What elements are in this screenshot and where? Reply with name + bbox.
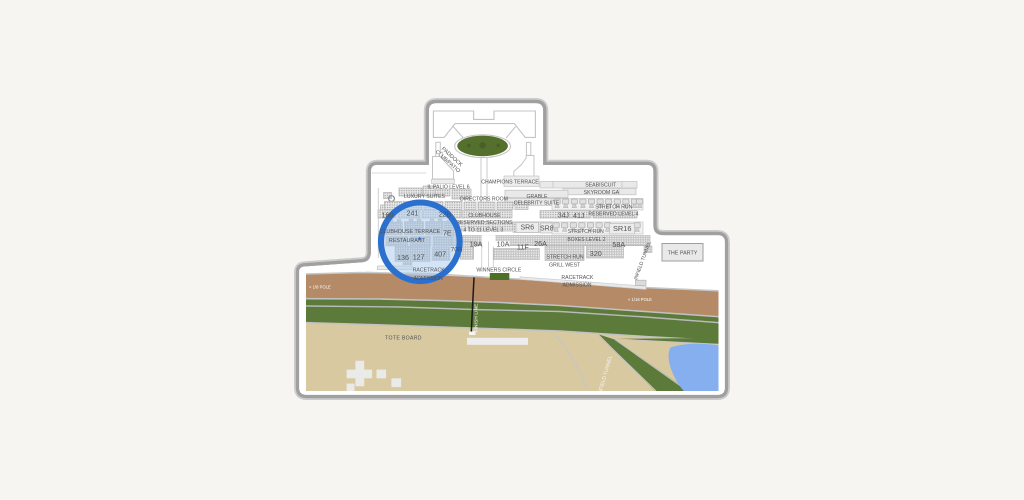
svg-text:SR6: SR6: [520, 224, 534, 231]
svg-text:SR16: SR16: [613, 224, 632, 233]
svg-text:STRETCH RUN: STRETCH RUN: [595, 204, 632, 210]
svg-text:136: 136: [397, 253, 409, 262]
svg-text:RESERVED LEVEL 4: RESERVED LEVEL 4: [588, 212, 638, 218]
svg-text:34J: 34J: [558, 213, 569, 220]
svg-text:ADMISSION: ADMISSION: [562, 283, 591, 289]
svg-text:BOXES LEVEL 2: BOXES LEVEL 2: [567, 237, 605, 243]
svg-text:ADMISSION: ADMISSION: [414, 276, 443, 282]
svg-text:RACETRACK: RACETRACK: [413, 268, 446, 274]
svg-text:19A: 19A: [470, 240, 483, 249]
svg-text:SEABISCUIT: SEABISCUIT: [585, 183, 617, 189]
svg-text:DIRECTORS ROOM: DIRECTORS ROOM: [460, 197, 508, 203]
svg-text:SKYROOM GA: SKYROOM GA: [584, 190, 620, 196]
svg-text:CHAMPIONS TERRACE: CHAMPIONS TERRACE: [481, 180, 539, 186]
svg-text:10A: 10A: [497, 239, 510, 248]
svg-text:« 1/16 POLE: « 1/16 POLE: [628, 297, 652, 302]
svg-text:160: 160: [382, 213, 394, 220]
svg-text:58A: 58A: [612, 240, 625, 249]
svg-text:CELEBRITY SUITE: CELEBRITY SUITE: [514, 201, 560, 207]
svg-text:11F: 11F: [517, 242, 529, 251]
svg-text:407: 407: [434, 250, 446, 259]
svg-text:LUXURY SUITES: LUXURY SUITES: [404, 194, 446, 200]
svg-text:241: 241: [407, 210, 419, 217]
svg-text:127: 127: [413, 252, 425, 261]
svg-text:41J: 41J: [573, 213, 584, 220]
svg-text:STRETCH RUN: STRETCH RUN: [546, 255, 583, 261]
svg-text:SR8: SR8: [540, 225, 554, 232]
svg-text:RESERVED SECTIONS: RESERVED SECTIONS: [456, 220, 513, 226]
svg-text:« 1/8 POLE: « 1/8 POLE: [309, 285, 331, 290]
svg-text:FINISH LINE: FINISH LINE: [473, 304, 478, 333]
svg-text:320: 320: [590, 249, 602, 258]
svg-text:26A: 26A: [534, 239, 547, 248]
svg-text:WINNERS CIRCLE: WINNERS CIRCLE: [476, 268, 522, 274]
svg-text:IL PALIO LEVEL 6: IL PALIO LEVEL 6: [427, 184, 469, 190]
svg-text:THE PARTY: THE PARTY: [668, 251, 698, 257]
svg-text:CLUBHOUSE: CLUBHOUSE: [468, 213, 501, 219]
svg-text:7E: 7E: [443, 231, 452, 238]
svg-text:STRETCH RUN: STRETCH RUN: [568, 229, 604, 235]
svg-text:CLUBHOUSE TERRACE: CLUBHOUSE TERRACE: [380, 229, 441, 235]
svg-text:4 TO 11 LEVEL 3: 4 TO 11 LEVEL 3: [464, 227, 504, 233]
svg-text:TOTE BOARD: TOTE BOARD: [385, 336, 422, 342]
svg-text:RACETRACK: RACETRACK: [561, 275, 594, 281]
svg-text:GRILL WEST: GRILL WEST: [549, 262, 581, 268]
svg-text:22B: 22B: [439, 212, 452, 219]
svg-text:70B: 70B: [450, 246, 463, 253]
